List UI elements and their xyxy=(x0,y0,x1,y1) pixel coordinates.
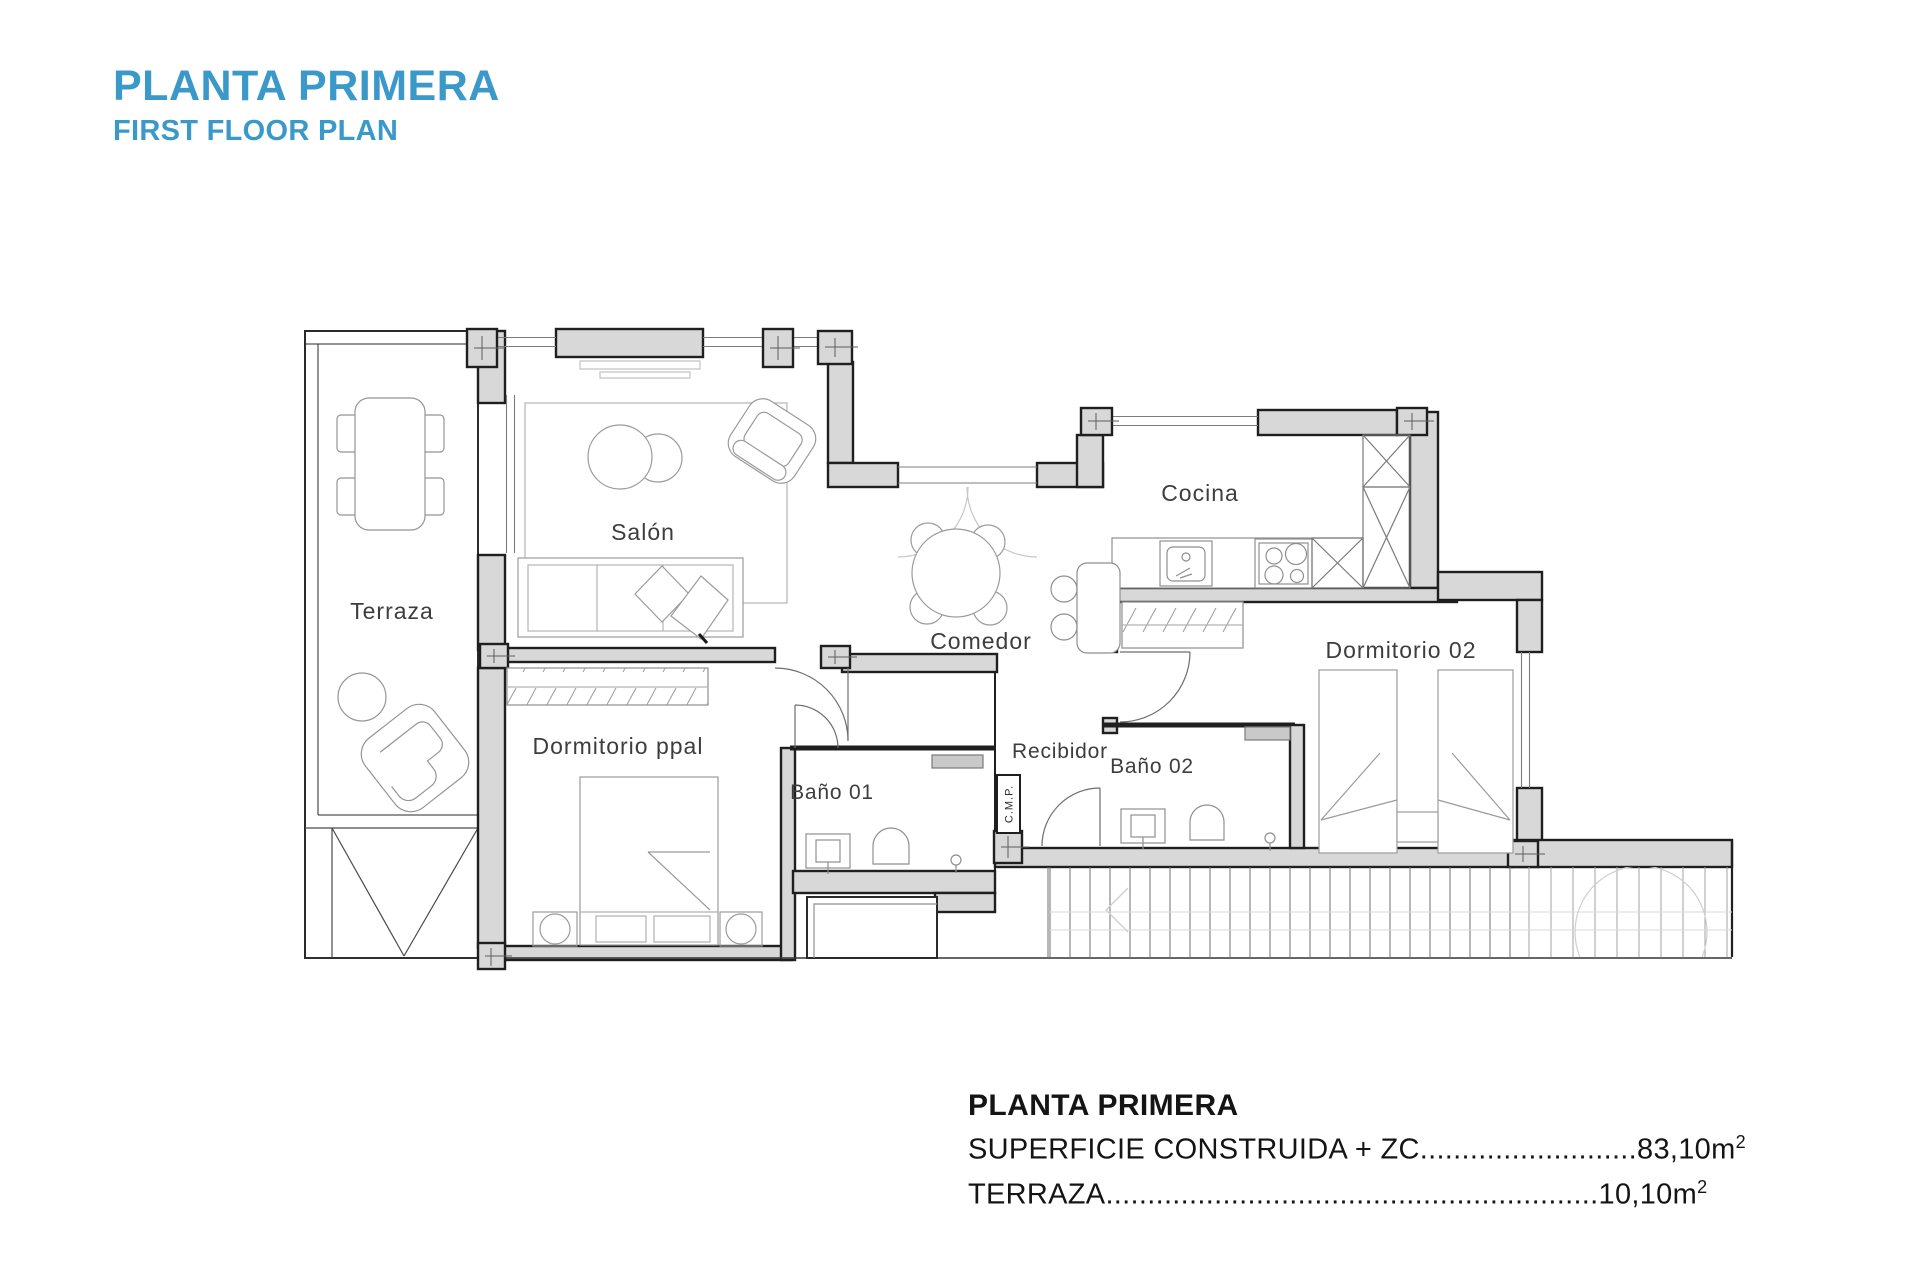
summary-row-terrace-area: TERRAZA.................................… xyxy=(968,1169,1748,1214)
comedor-furniture xyxy=(910,523,1007,625)
bano02-fixtures xyxy=(1121,727,1290,851)
room-label-dormitorio-02: Dormitorio 02 xyxy=(1325,637,1476,663)
room-label-comedor: Comedor xyxy=(930,628,1032,654)
summary-value: 83,10m xyxy=(1637,1134,1736,1166)
summary-leader: ........................................… xyxy=(1105,1178,1598,1210)
summary-row-built-area: SUPERFICIE CONSTRUIDA + ZC..............… xyxy=(968,1124,1748,1169)
salon-furniture xyxy=(518,361,822,643)
summary-sup: 2 xyxy=(1697,1177,1707,1197)
room-label-terraza: Terraza xyxy=(350,598,434,624)
page: { "header": { "title": "PLANTA PRIMERA",… xyxy=(0,0,1920,1280)
room-label-bano-01: Baño 01 xyxy=(790,781,874,804)
room-label-recibidor: Recibidor xyxy=(1012,740,1108,763)
summary-label: SUPERFICIE CONSTRUIDA + ZC xyxy=(968,1134,1420,1166)
summary-sup: 2 xyxy=(1736,1132,1746,1152)
summary-title: PLANTA PRIMERA xyxy=(968,1088,1748,1124)
summary-value: 10,10m xyxy=(1599,1178,1698,1210)
summary-leader: .......................... xyxy=(1420,1134,1637,1166)
room-label-bano-02: Baño 02 xyxy=(1110,755,1194,778)
room-label-dormitorio-ppal: Dormitorio ppal xyxy=(533,733,704,759)
stairs-area xyxy=(1048,866,1732,998)
summary-label: TERRAZA xyxy=(968,1178,1105,1210)
dorm-ppal-furniture xyxy=(507,668,762,946)
room-label-cmp: C.M.P. xyxy=(1004,785,1016,823)
room-label-cocina: Cocina xyxy=(1161,480,1239,506)
area-summary: PLANTA PRIMERA SUPERFICIE CONSTRUIDA + Z… xyxy=(968,1088,1748,1213)
room-label-salon: Salón xyxy=(611,519,675,545)
